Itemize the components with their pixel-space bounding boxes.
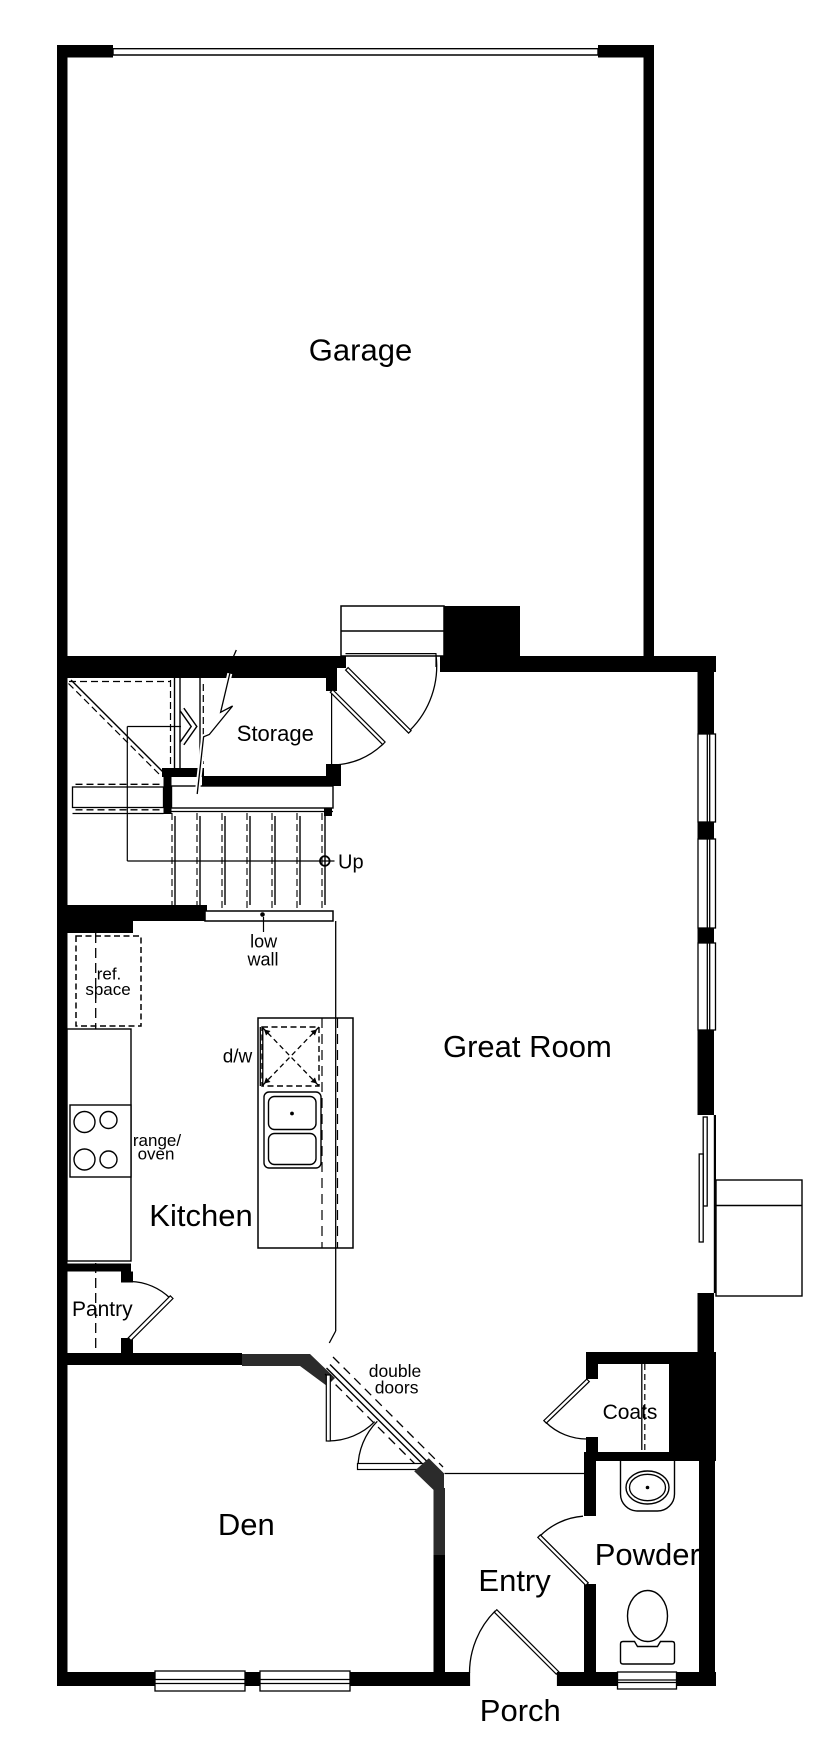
svg-text:Porch: Porch [480,1693,561,1728]
svg-text:Kitchen: Kitchen [149,1198,252,1233]
svg-text:Storage: Storage [237,721,314,746]
svg-text:space: space [85,980,130,999]
svg-text:Powder: Powder [595,1537,700,1572]
svg-text:Entry: Entry [478,1563,551,1598]
svg-text:Pantry: Pantry [72,1298,133,1321]
svg-text:Coats: Coats [603,1401,658,1424]
svg-text:d/w: d/w [223,1047,253,1068]
svg-text:doors: doors [375,1378,419,1398]
svg-text:Great Room: Great Room [443,1029,612,1064]
svg-text:wall: wall [246,949,278,969]
svg-text:Den: Den [218,1507,275,1542]
svg-text:Garage: Garage [309,333,412,368]
svg-text:Up: Up [338,852,364,874]
svg-text:oven: oven [138,1145,175,1164]
